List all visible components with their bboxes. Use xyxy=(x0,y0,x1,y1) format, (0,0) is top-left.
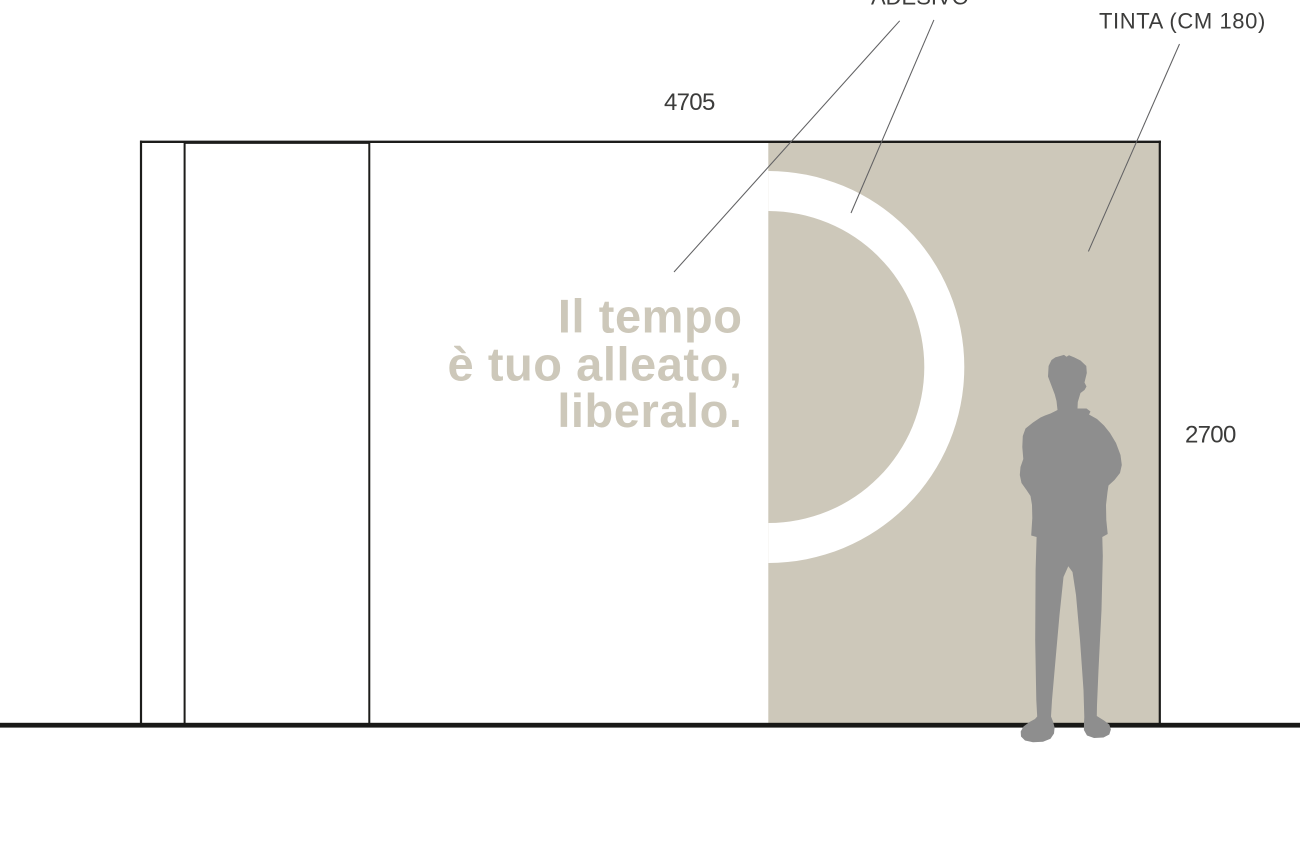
svg-text:TINTA (CM 180): TINTA (CM 180) xyxy=(1099,9,1266,34)
svg-text:Il tempo: Il tempo xyxy=(558,290,743,343)
svg-text:ADESIVO: ADESIVO xyxy=(871,0,969,10)
svg-text:2700: 2700 xyxy=(1185,422,1236,449)
svg-text:liberalo.: liberalo. xyxy=(557,384,742,437)
svg-text:4705: 4705 xyxy=(664,89,715,116)
svg-text:è tuo alleato,: è tuo alleato, xyxy=(448,338,743,391)
